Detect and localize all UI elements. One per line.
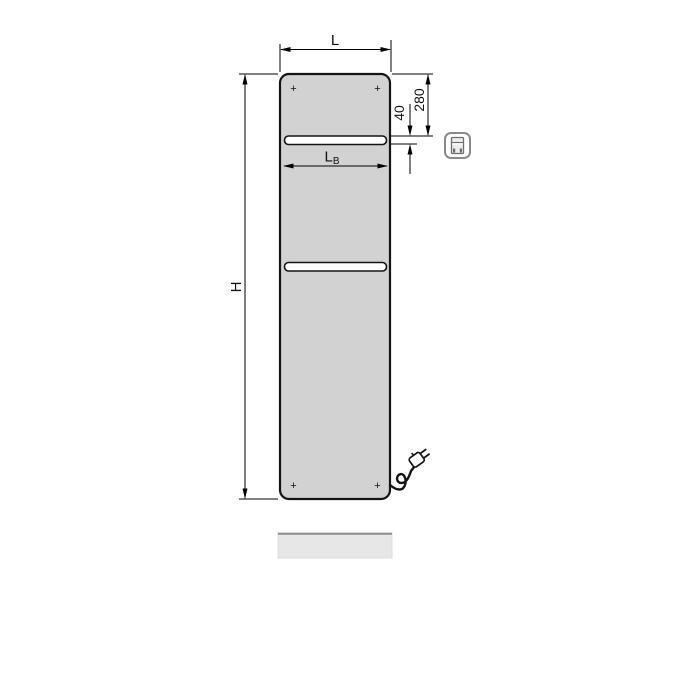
cord-path [390, 467, 415, 490]
plug-earth-contact [412, 453, 414, 455]
towel-rail-slot-upper [285, 136, 387, 145]
top-to-rail-label: 280 [411, 88, 427, 112]
overall-width-label: L [331, 32, 339, 49]
arrowhead-left [280, 47, 291, 52]
baseboard-strip [278, 533, 392, 558]
baseboard-face [278, 533, 392, 558]
overall-height-label: H [228, 282, 245, 293]
icon-foot-right [460, 149, 462, 153]
rail-width-label-subscript: B [333, 156, 340, 167]
rail-width-label-main: L [324, 149, 332, 166]
rail-slot-height-label: 40 [391, 105, 407, 121]
panel-radiator-icon [445, 133, 470, 158]
arrowhead-up [408, 144, 413, 155]
arrowhead-down [243, 489, 248, 500]
plug-prong-bottom [424, 454, 430, 458]
arrowhead-up [243, 74, 248, 85]
arrowhead-right [381, 47, 392, 52]
towel-rail-slot-lower [285, 263, 387, 272]
corner-mark-bottom-right: + [374, 480, 380, 492]
corner-mark-top-right: + [374, 83, 380, 95]
corner-mark-top-left: + [290, 83, 296, 95]
plug-body [408, 452, 425, 469]
arrowhead-down [408, 126, 413, 137]
arrowhead-up [426, 74, 431, 85]
icon-foot-left [453, 149, 455, 153]
corner-mark-bottom-left: + [290, 480, 296, 492]
drawing-canvas: + + + + L H 280 40 [0, 0, 700, 700]
power-plug-icon [406, 445, 431, 468]
arrowhead-down [426, 126, 431, 137]
radiator-technical-drawing: + + + + L H 280 40 [0, 0, 700, 700]
plug-prong-top [420, 449, 426, 453]
power-cord [390, 445, 431, 490]
